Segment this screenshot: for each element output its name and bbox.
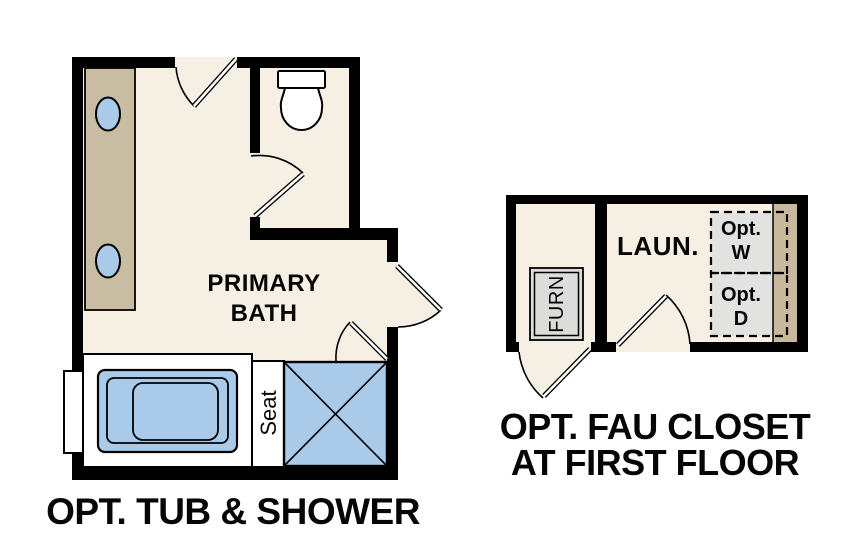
primary-bath-label-line2: BATH: [231, 300, 298, 327]
primary-bath-label-line1: PRIMARY: [207, 270, 320, 297]
floorplan-page: PRIMARY BATH Seat OPT. TUB & SHOWER: [0, 0, 841, 556]
closet-wall-bottom-right: [690, 342, 808, 352]
wall-right-jamb: [387, 240, 398, 262]
optional-washer-label-line1: Opt.: [721, 218, 761, 240]
vanity: [85, 68, 135, 310]
furnace-label: FURN: [546, 275, 568, 333]
laundry-doorway: [616, 342, 690, 352]
wall-bottom: [72, 467, 398, 480]
laundry-label: LAUN.: [617, 231, 699, 261]
wall-wc-left-stub: [250, 217, 260, 228]
wall-right-lower: [387, 327, 398, 467]
seat-label: Seat: [256, 390, 281, 435]
tub-ledge: [64, 371, 83, 453]
bath-right-doorway: [387, 262, 398, 327]
primary-bath-plan: PRIMARY BATH Seat OPT. TUB & SHOWER: [46, 57, 441, 532]
toilet-tank: [278, 71, 325, 88]
shower: [284, 362, 387, 466]
optional-washer-label-line2: W: [732, 242, 751, 264]
bathtub: [98, 370, 237, 452]
floorplan-drawing: PRIMARY BATH Seat OPT. TUB & SHOWER: [0, 0, 841, 556]
tub-basin: [133, 383, 218, 440]
wall-wc-right: [349, 57, 360, 228]
closet-wall-bottom-mid: [591, 342, 616, 352]
closet-wall-bottom-left: [506, 342, 519, 352]
optional-dryer-label-line2: D: [734, 308, 748, 330]
closet-wall-right: [797, 195, 808, 352]
wall-top-left: [72, 57, 175, 68]
closet-wall-top: [506, 195, 808, 204]
toilet-bowl: [281, 88, 322, 130]
wall-wc-left: [250, 57, 260, 153]
tub-shower-caption: OPT. TUB & SHOWER: [46, 491, 420, 532]
closet-wall-left: [506, 195, 516, 352]
optional-dryer-label-line1: Opt.: [721, 284, 761, 306]
furnace-doorway: [519, 342, 591, 352]
wall-wc-bottom: [250, 228, 398, 240]
toilet: [278, 71, 325, 130]
sink-1: [96, 98, 120, 131]
fau-closet-caption-line1: OPT. FAU CLOSET: [500, 406, 811, 447]
fau-closet-plan: LAUN. Opt. W Opt. D FURN OPT. FAU CLOSET…: [500, 195, 811, 483]
closet-wall-divider: [595, 195, 607, 343]
sink-2: [96, 245, 120, 278]
fau-closet-caption-line2: AT FIRST FLOOR: [511, 442, 800, 483]
